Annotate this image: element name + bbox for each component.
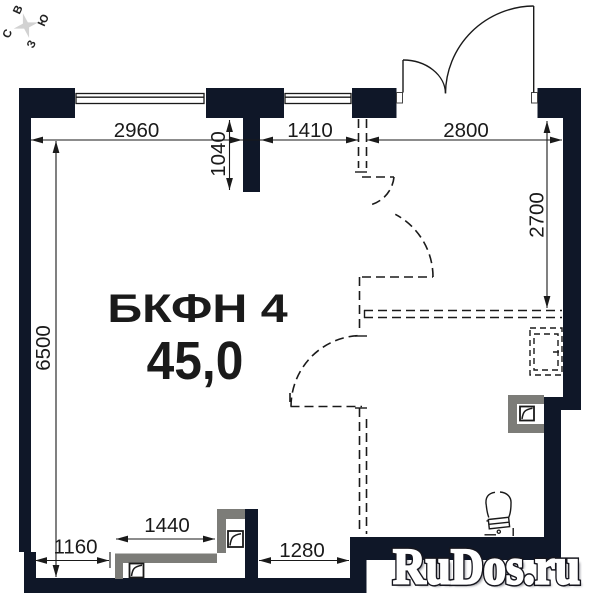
svg-text:1410: 1410 xyxy=(287,119,333,142)
svg-text:1040: 1040 xyxy=(207,131,230,177)
svg-text:RuDos.ru: RuDos.ru xyxy=(393,540,580,596)
svg-text:2800: 2800 xyxy=(443,119,489,142)
svg-text:1160: 1160 xyxy=(53,536,97,559)
svg-text:45,0: 45,0 xyxy=(147,330,244,390)
svg-text:БКФН 4: БКФН 4 xyxy=(107,287,288,331)
svg-text:1440: 1440 xyxy=(144,514,190,537)
svg-text:1280: 1280 xyxy=(279,539,325,562)
svg-text:2700: 2700 xyxy=(526,192,549,238)
svg-text:2960: 2960 xyxy=(114,119,160,142)
svg-text:6500: 6500 xyxy=(32,325,55,371)
